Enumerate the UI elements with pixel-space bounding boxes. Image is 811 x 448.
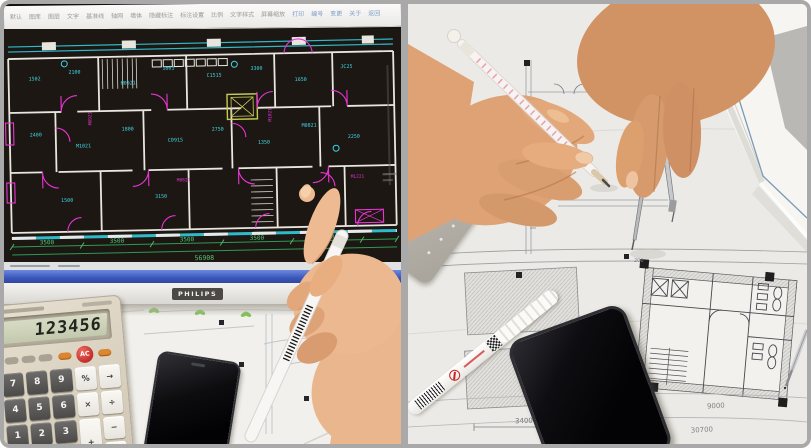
toolbar-item: 编号 (311, 12, 323, 18)
cad-label: C0915 (168, 137, 183, 143)
door-tag: M1021 (267, 108, 273, 122)
digit-key: 4 (4, 398, 27, 423)
photo-left-cad-monitor: 默认 图库 图层 文字 基准线 轴网 墙体 隐藏标注 标注设置 比例 文字样式 … (4, 4, 401, 444)
cad-label: 1502 (29, 76, 41, 82)
toolbar-item: 变更 (330, 12, 342, 18)
digit-key: 7 (4, 372, 25, 397)
toolbar-item: 隐藏标注 (149, 13, 173, 19)
toolbar-item: 基准线 (86, 14, 104, 20)
toolbar-item: 返回 (368, 11, 380, 17)
digit-key: 2 (30, 422, 53, 444)
photo-divider (401, 4, 408, 444)
cad-label: 2750 (212, 127, 224, 133)
toolbar-item: 打印 (292, 12, 304, 18)
dim-label: 3500 (40, 239, 55, 246)
door-tag: M0821 (177, 177, 191, 183)
hand-and-pen-overlay (234, 134, 401, 444)
operator-key: × (76, 392, 99, 417)
operator-key: + (79, 417, 104, 444)
calculator-keypad: 7 8 9 % → 4 5 6 × ÷ 1 2 3 + − 0 00 . = (4, 364, 128, 444)
cad-label: 2400 (30, 132, 42, 138)
calculator-buttons-slot (82, 300, 112, 307)
operator-key: → (98, 364, 121, 389)
cad-label: 2100 (68, 70, 80, 76)
cad-label: M1021 (76, 143, 91, 149)
operator-key: − (103, 415, 126, 440)
cad-label: C1515 (206, 73, 221, 79)
cad-label: 1803 (162, 66, 174, 72)
cad-label: JC25 (340, 64, 352, 70)
earpiece (191, 362, 205, 367)
toolbar-item: 关于 (349, 11, 361, 17)
dim-label: 3500 (110, 238, 125, 245)
toolbar-item: 轴网 (111, 14, 123, 20)
digit-key: 6 (52, 394, 75, 419)
cad-label: M0921 (121, 80, 136, 86)
memory-key (21, 355, 36, 363)
photo-right-blueprint-work: 3400 9000 30700 200 (408, 4, 807, 444)
clear-entry-key (98, 349, 112, 357)
equals-key: = (105, 441, 128, 444)
pencil-ferrule (462, 44, 472, 54)
pointing-hand (281, 183, 401, 444)
smartphone (142, 350, 242, 444)
toolbar-item: 默认 (10, 15, 22, 21)
calculator-lcd-value: 123456 (4, 313, 107, 344)
toolbar-item: 墙体 (130, 14, 142, 20)
memory-key (38, 354, 53, 362)
cad-label: 3150 (155, 194, 167, 200)
cad-label: M0821 (302, 123, 317, 129)
toolbar-item: 标注设置 (180, 13, 204, 19)
photo-collage: 默认 图库 图层 文字 基准线 轴网 墙体 隐藏标注 标注设置 比例 文字样式 … (0, 0, 811, 448)
memory-key (4, 357, 19, 365)
toolbar-item: 文字样式 (230, 12, 254, 18)
toolbar-item: 屏幕缩放 (261, 12, 285, 18)
toolbar-item: 比例 (211, 13, 223, 19)
cad-label: 1800 (122, 126, 134, 132)
dim-label: 3500 (180, 236, 195, 243)
door-tag: M0921 (87, 111, 93, 125)
toolbar-item: 图库 (29, 15, 41, 21)
calculator-display: 123456 (4, 309, 112, 349)
toolbar-item: 图层 (48, 14, 60, 20)
digit-key: 5 (28, 396, 51, 421)
cad-label: 1500 (61, 198, 73, 204)
cad-label: 1650 (295, 77, 307, 83)
cad-label: 3300 (250, 66, 262, 72)
hands-overlay (408, 4, 807, 444)
calculator: 123456 AC 7 8 9 % → 4 5 6 × ÷ (4, 295, 135, 444)
digit-key: 1 (6, 424, 29, 444)
all-clear-key: AC (76, 345, 94, 363)
operator-key: % (74, 366, 97, 391)
correct-key (58, 352, 72, 360)
digit-key: 8 (26, 370, 49, 395)
cad-toolbar: 默认 图库 图层 文字 基准线 轴网 墙体 隐藏标注 标注设置 比例 文字样式 … (4, 4, 401, 31)
toolbar-item: 文字 (67, 14, 79, 20)
pencil-eraser (448, 30, 461, 43)
dim-total-label: 56908 (194, 254, 214, 262)
operator-key: ÷ (100, 390, 123, 415)
calculator-brand-bar (4, 306, 44, 314)
digit-key: 3 (54, 419, 77, 444)
digit-key: 9 (50, 368, 73, 393)
monitor-brand-logo: PHILIPS (172, 288, 223, 300)
